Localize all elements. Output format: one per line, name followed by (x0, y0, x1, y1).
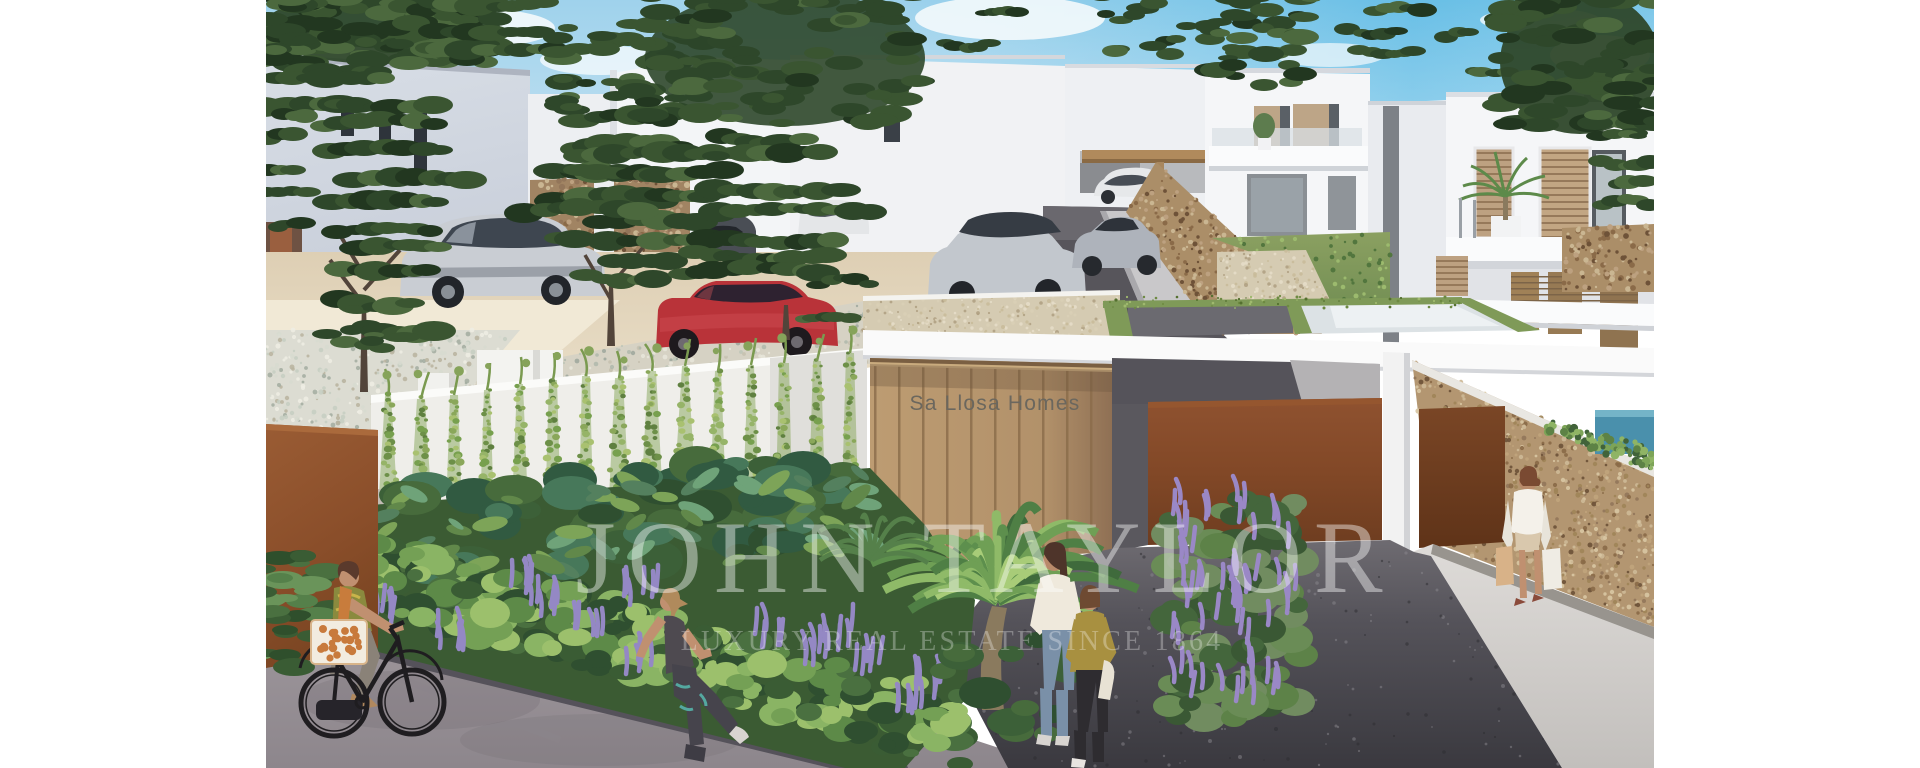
svg-text:LUXURY REAL ESTATE SINCE 1864: LUXURY REAL ESTATE SINCE 1864 (681, 626, 1224, 657)
svg-text:Sa Llosa Homes: Sa Llosa Homes (910, 392, 1081, 415)
svg-text:JOHN TAYLOR: JOHN TAYLOR (575, 501, 1394, 615)
